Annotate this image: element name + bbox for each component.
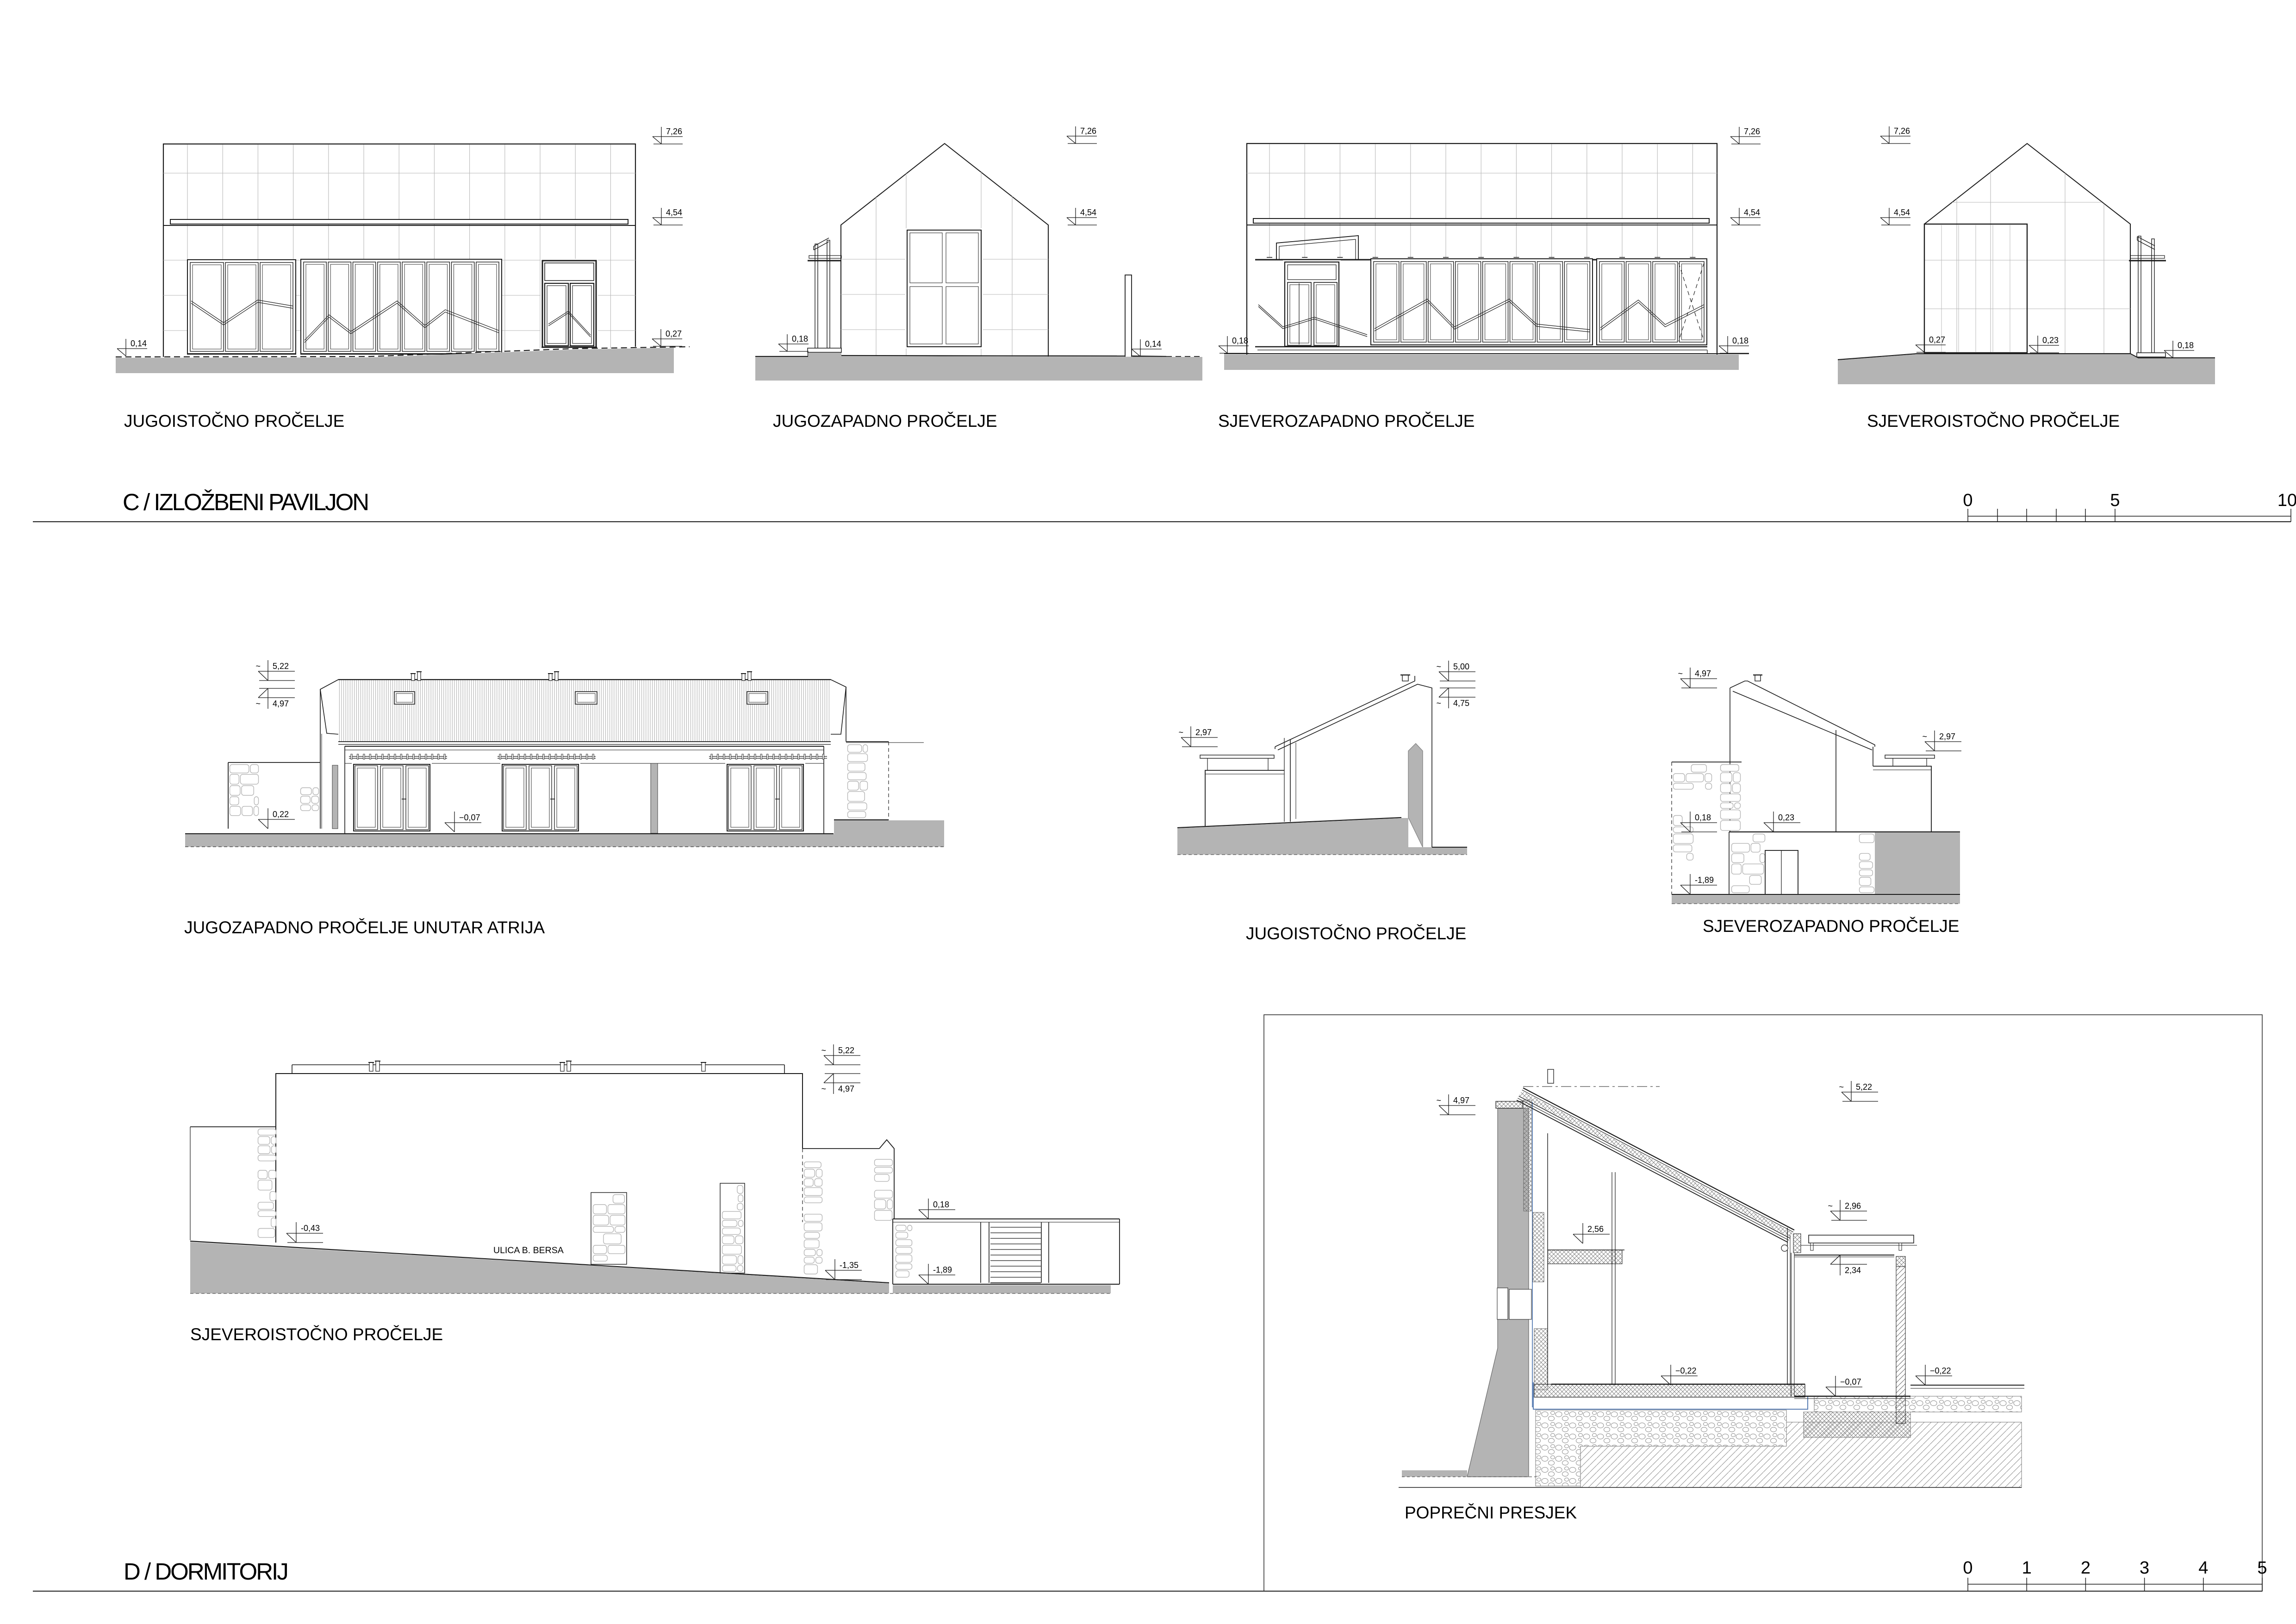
svg-text:~: ~	[1828, 1201, 1833, 1211]
svg-text:4: 4	[2198, 1558, 2208, 1578]
svg-text:-1,89: -1,89	[1695, 875, 1714, 885]
svg-text:2: 2	[2081, 1558, 2091, 1578]
svg-text:0,27: 0,27	[1929, 335, 1945, 344]
svg-text:7,26: 7,26	[1744, 127, 1760, 136]
svg-text:0: 0	[1963, 491, 1972, 510]
svg-text:JUGOISTOČNO PROČELJE: JUGOISTOČNO PROČELJE	[124, 412, 344, 431]
svg-text:~: ~	[1436, 662, 1441, 671]
svg-text:7,26: 7,26	[666, 127, 682, 136]
svg-text:0,18: 0,18	[1695, 813, 1711, 822]
svg-text:SJEVEROZAPADNO PROČELJE: SJEVEROZAPADNO PROČELJE	[1703, 917, 1959, 936]
svg-text:10: 10	[2277, 491, 2296, 510]
svg-text:0,27: 0,27	[666, 329, 682, 338]
svg-text:C / IZLOŽBENI PAVILJON: C / IZLOŽBENI PAVILJON	[123, 489, 368, 515]
svg-text:0: 0	[1963, 1558, 1972, 1578]
svg-text:1: 1	[2022, 1558, 2032, 1578]
svg-text:4,97: 4,97	[1453, 1096, 1469, 1105]
svg-text:JUGOZAPADNO PROČELJE UNUTAR AT: JUGOZAPADNO PROČELJE UNUTAR ATRIJA	[184, 918, 545, 937]
svg-text:JUGOISTOČNO PROČELJE: JUGOISTOČNO PROČELJE	[1246, 924, 1466, 943]
svg-text:4,54: 4,54	[1894, 208, 1910, 217]
svg-text:0,18: 0,18	[1232, 336, 1248, 345]
svg-text:ULICA B. BERSA: ULICA B. BERSA	[493, 1245, 564, 1255]
svg-text:0,18: 0,18	[792, 334, 808, 344]
svg-text:SJEVEROISTOČNO PROČELJE: SJEVEROISTOČNO PROČELJE	[1867, 412, 2120, 431]
svg-text:~: ~	[821, 1084, 826, 1093]
svg-text:0,23: 0,23	[2042, 336, 2059, 345]
svg-text:~: ~	[255, 699, 261, 708]
svg-text:5,22: 5,22	[273, 662, 289, 671]
svg-text:5,22: 5,22	[838, 1046, 854, 1055]
svg-text:−0,22: −0,22	[1675, 1366, 1697, 1375]
svg-text:~: ~	[1922, 732, 1927, 741]
svg-text:2,34: 2,34	[1845, 1266, 1861, 1275]
svg-text:~: ~	[1178, 728, 1183, 737]
svg-text:0,14: 0,14	[131, 339, 147, 348]
svg-text:~: ~	[1436, 699, 1441, 708]
svg-text:~: ~	[821, 1046, 826, 1055]
svg-text:4,97: 4,97	[838, 1084, 854, 1093]
svg-text:JUGOZAPADNO PROČELJE: JUGOZAPADNO PROČELJE	[773, 412, 997, 431]
svg-text:2,97: 2,97	[1939, 732, 1955, 741]
svg-text:7,26: 7,26	[1894, 126, 1910, 136]
svg-text:SJEVEROZAPADNO PROČELJE: SJEVEROZAPADNO PROČELJE	[1218, 412, 1475, 431]
svg-text:5,00: 5,00	[1453, 662, 1469, 671]
svg-text:7,26: 7,26	[1080, 126, 1096, 136]
svg-text:3: 3	[2140, 1558, 2149, 1578]
svg-text:0,18: 0,18	[1732, 336, 1748, 345]
svg-text:5,22: 5,22	[1856, 1082, 1872, 1092]
svg-text:4,75: 4,75	[1453, 699, 1469, 708]
svg-text:2,56: 2,56	[1587, 1224, 1604, 1234]
svg-text:-1,35: -1,35	[840, 1261, 859, 1270]
svg-text:SJEVEROISTOČNO PROČELJE: SJEVEROISTOČNO PROČELJE	[190, 1325, 443, 1344]
svg-text:−0,07: −0,07	[459, 813, 480, 822]
svg-text:4,54: 4,54	[666, 208, 682, 217]
svg-text:~: ~	[1839, 1082, 1844, 1092]
svg-text:D / DORMITORIJ: D / DORMITORIJ	[124, 1558, 287, 1585]
svg-text:~: ~	[255, 662, 261, 671]
svg-text:0,23: 0,23	[1778, 813, 1794, 822]
svg-text:4,97: 4,97	[1695, 669, 1711, 678]
svg-text:0,14: 0,14	[1145, 339, 1161, 349]
svg-text:~: ~	[1678, 669, 1683, 678]
svg-text:4,54: 4,54	[1744, 208, 1760, 217]
svg-text:POPREČNI PRESJEK: POPREČNI PRESJEK	[1405, 1503, 1577, 1522]
svg-text:4,54: 4,54	[1080, 208, 1096, 217]
svg-text:2,97: 2,97	[1195, 728, 1212, 737]
svg-text:−0,07: −0,07	[1840, 1377, 1861, 1387]
svg-text:4,97: 4,97	[273, 699, 289, 708]
svg-text:5: 5	[2257, 1558, 2267, 1578]
svg-text:5: 5	[2110, 491, 2120, 510]
svg-text:0,18: 0,18	[2178, 341, 2194, 350]
svg-text:2,96: 2,96	[1845, 1201, 1861, 1211]
svg-text:0,22: 0,22	[273, 810, 289, 819]
svg-text:-0,43: -0,43	[301, 1224, 320, 1233]
svg-text:0,18: 0,18	[933, 1200, 949, 1209]
svg-text:-1,89: -1,89	[933, 1265, 952, 1274]
svg-text:~: ~	[1436, 1096, 1441, 1105]
svg-text:−0,22: −0,22	[1930, 1366, 1951, 1375]
